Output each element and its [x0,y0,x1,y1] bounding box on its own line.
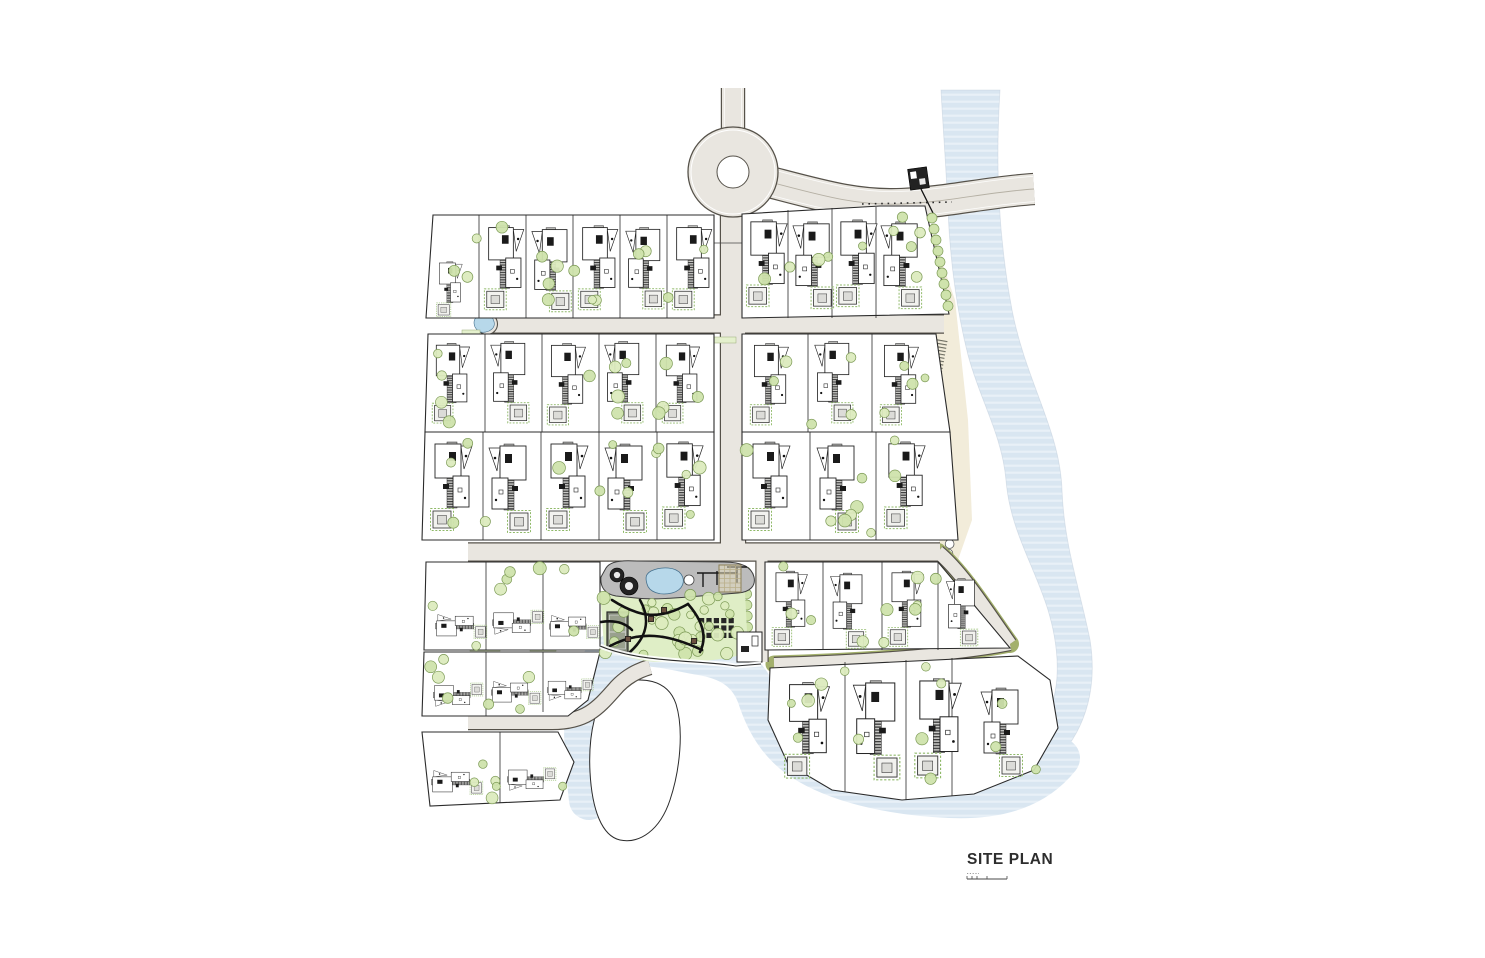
villa-cluster-row-f [740,432,958,540]
tree [553,461,566,474]
path-node [661,607,666,612]
tree [483,699,493,709]
tree [542,294,554,306]
tree [472,641,481,650]
path-node [625,636,630,641]
scale-bar [967,874,1007,880]
tree [560,564,570,574]
tree [937,679,946,688]
path-node [648,616,653,621]
tree [434,349,443,358]
tree [449,265,460,276]
tree [443,416,455,428]
villa-cluster-row-j [422,652,600,716]
tree [915,227,926,238]
swimming-pool [646,568,683,594]
tree [588,296,596,304]
tree [611,390,624,403]
tree [889,226,899,236]
tree [516,705,525,714]
plot-block [426,215,714,318]
tree [714,592,723,601]
hedge-tree [935,257,945,267]
plan-graphics [422,88,1092,841]
tree [446,458,455,467]
tree [543,278,554,289]
tree [867,528,876,537]
tree [911,271,922,282]
villa-cluster-row-b [742,206,949,318]
tree [537,251,548,262]
tree [907,378,918,389]
tree [569,265,580,276]
tree [705,622,714,631]
tree [759,273,771,285]
tree [721,647,733,659]
tree [486,792,498,804]
tree [911,571,924,584]
tree [857,636,868,647]
tree [786,608,797,619]
tree [686,510,694,518]
tree [428,601,437,610]
tree [846,410,856,420]
villa-cluster-row-a [426,215,714,318]
tree [909,603,921,615]
hedge-tree [933,246,943,256]
tree [838,514,851,527]
splash-pool [684,575,694,585]
tree [900,361,909,370]
tree [826,516,836,526]
path-node [691,638,696,643]
plan-title: SITE PLAN [967,851,1053,868]
hedge-tree [927,213,937,223]
tree [496,221,508,233]
tree [793,733,802,742]
tree [425,661,437,673]
tree [682,470,690,478]
tree [711,628,724,641]
tree [479,760,488,769]
tree [523,671,534,682]
villa-cluster-row-c [425,334,714,432]
tree [812,253,825,266]
tree [853,734,863,744]
tree [780,356,792,368]
site-plan-page: SITE PLAN [0,0,1485,958]
tree [879,637,889,647]
tree [442,693,453,704]
tree [806,615,815,624]
tree [648,598,656,606]
tree [439,654,449,664]
tree [448,517,459,528]
pergola-icon [719,565,741,592]
tree [840,667,849,676]
tree [559,782,567,790]
gatehouse-icon [908,167,930,190]
tree [609,441,617,449]
tree [702,592,715,605]
boulder [945,540,954,549]
tree [880,408,889,417]
tree [916,733,928,745]
tree [881,603,893,615]
tree [480,516,490,526]
hedge-tree [937,268,947,278]
hedge-tree [941,290,951,300]
hedge-tree [931,235,941,245]
tree [633,249,644,260]
hedge-tree [943,301,953,311]
tree [584,370,596,382]
tree [769,376,778,385]
tree [693,461,706,474]
tree [700,606,708,614]
tree [906,242,916,252]
tree [492,782,500,790]
tree [612,407,624,419]
hedge-tree [939,279,949,289]
villa-cluster-row-d [742,334,950,432]
tree [437,371,447,381]
tree [597,591,610,604]
tree [472,234,481,243]
tree [569,626,579,636]
tree [807,419,817,429]
tree [779,562,788,571]
tree [930,573,941,584]
tree [609,361,621,373]
tree [787,699,795,707]
tree [997,699,1007,709]
amenity-layer [597,561,762,666]
tree [660,357,673,370]
tree [700,245,708,253]
tree [925,773,936,784]
tree [725,610,734,619]
tree [470,778,479,787]
villa-cluster-row-e [422,432,714,540]
tree [462,272,473,283]
tree [740,444,753,457]
tree [802,694,815,707]
roundabout-island [717,156,749,188]
tree [551,260,563,272]
villa-cluster-row-k [422,732,574,806]
tree [685,589,696,600]
tree [595,486,605,496]
tree [655,617,668,630]
tree [653,443,664,454]
site-plan-drawing: SITE PLAN [0,0,1485,958]
tree [505,567,516,578]
roundabout [688,127,778,217]
tree [533,562,546,575]
tree [432,671,444,683]
tree [622,359,631,368]
tree [889,470,901,482]
tree [991,742,1001,752]
tree [815,678,827,690]
tree [890,436,899,445]
tree [463,438,473,448]
tree [1031,765,1040,774]
villa-cluster-row-g [765,562,1010,650]
tree [653,407,666,420]
tree [692,391,703,402]
tree [623,487,633,497]
villa-cluster-row-i [424,562,600,650]
tree [721,602,729,610]
tree [897,212,907,222]
tree [921,374,929,382]
tree [857,473,867,483]
tree [922,662,931,671]
tree [846,353,856,363]
tree [435,396,447,408]
tree [663,293,673,303]
hedge-tree [929,224,939,234]
tree [495,583,507,595]
tree [785,262,795,272]
tree [858,242,866,250]
